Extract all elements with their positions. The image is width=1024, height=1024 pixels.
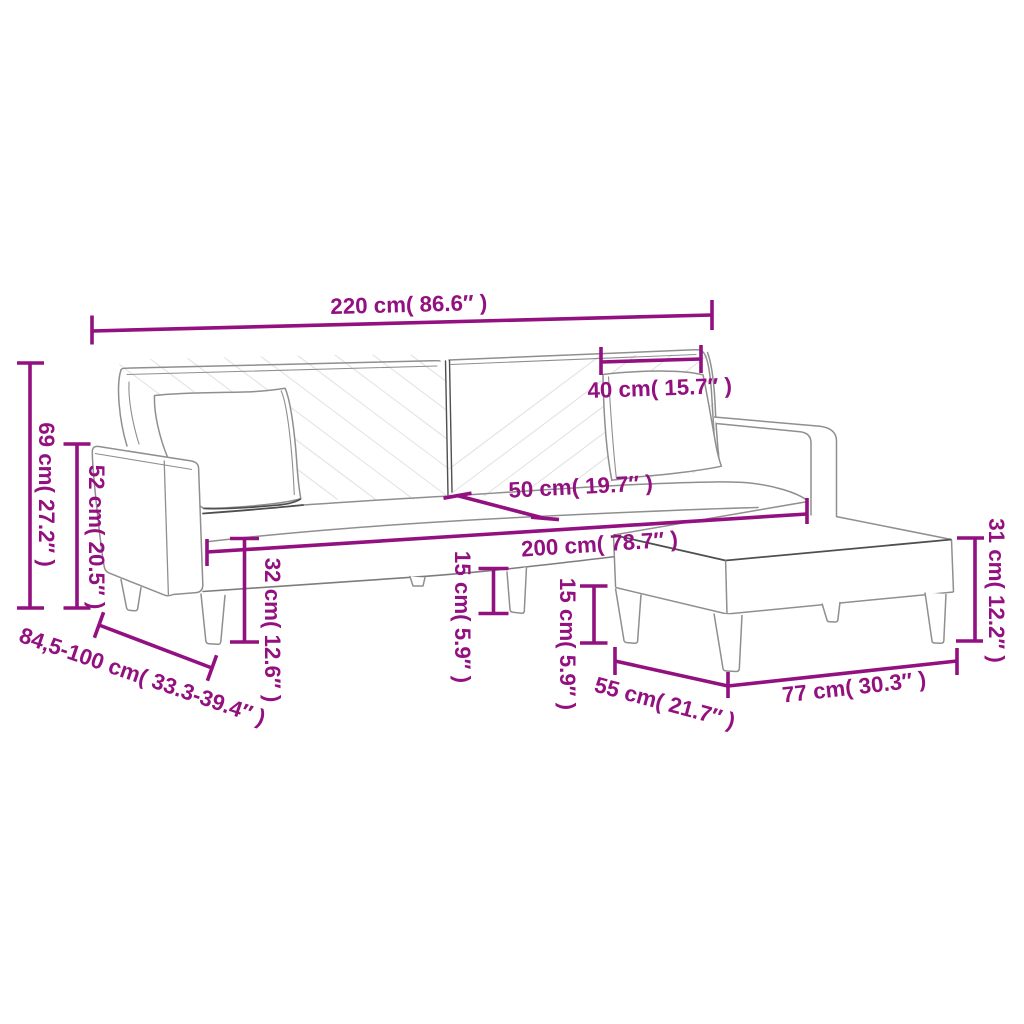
svg-text:15 cm( 5.9″ ): 15 cm( 5.9″ ) [450, 551, 475, 683]
svg-text:52 cm( 20.5″ ): 52 cm( 20.5″ ) [84, 465, 109, 610]
svg-text:15 cm( 5.9″ ): 15 cm( 5.9″ ) [555, 578, 580, 710]
svg-text:40 cm( 15.7″ ): 40 cm( 15.7″ ) [587, 373, 732, 403]
svg-text:32 cm( 12.6″ ): 32 cm( 12.6″ ) [260, 558, 285, 703]
svg-text:69 cm( 27.2″ ): 69 cm( 27.2″ ) [34, 422, 59, 567]
svg-text:220 cm( 86.6″ ): 220 cm( 86.6″ ) [330, 290, 488, 319]
svg-text:31 cm( 12.2″ ): 31 cm( 12.2″ ) [984, 518, 1009, 663]
